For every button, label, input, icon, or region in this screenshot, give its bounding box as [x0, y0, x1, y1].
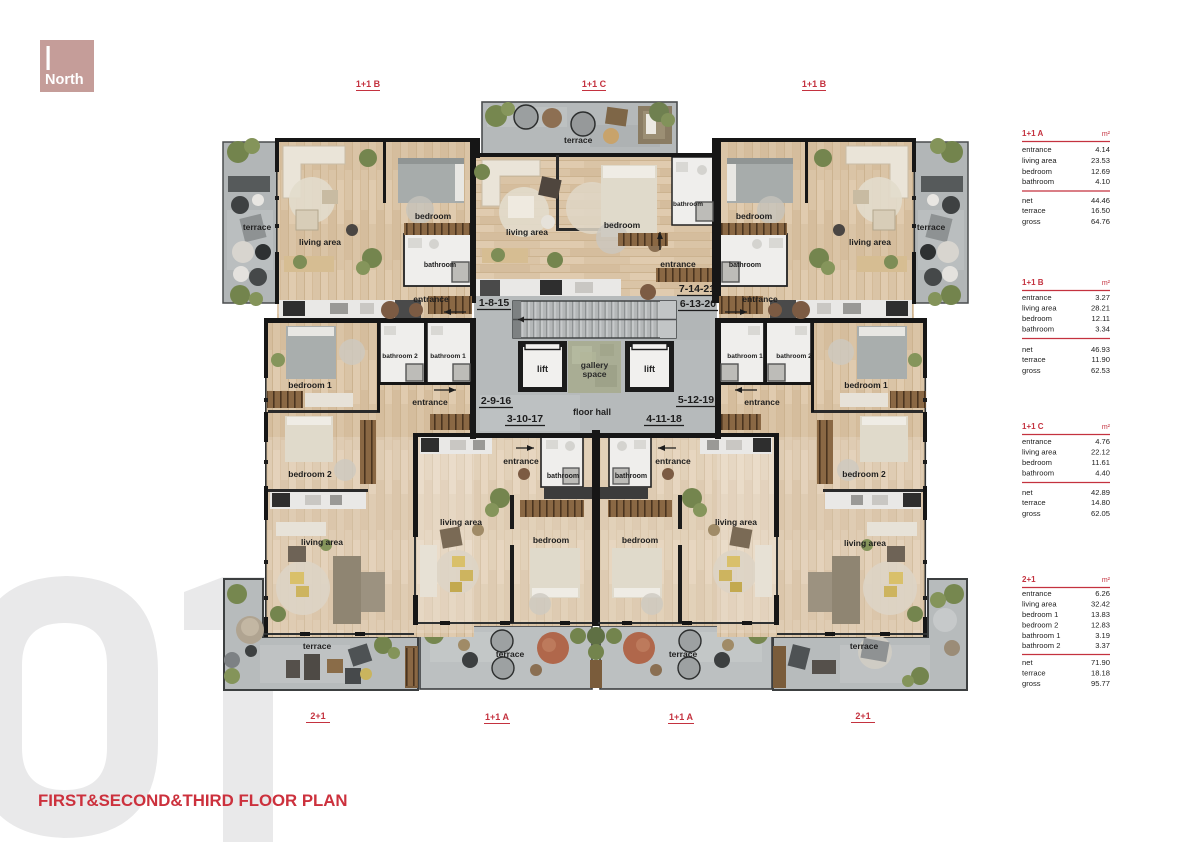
svg-text:net: net — [1022, 488, 1033, 497]
svg-text:bedroom: bedroom — [415, 211, 452, 221]
svg-text:bathroom 2: bathroom 2 — [776, 353, 812, 360]
svg-text:terrace: terrace — [243, 222, 272, 232]
svg-text:gross: gross — [1022, 217, 1041, 226]
svg-text:12.11: 12.11 — [1092, 314, 1110, 323]
svg-text:bedroom 2: bedroom 2 — [288, 469, 332, 479]
svg-text:bedroom 2: bedroom 2 — [842, 469, 886, 479]
svg-text:4-11-18: 4-11-18 — [646, 413, 682, 425]
svg-text:bathroom 2: bathroom 2 — [1022, 641, 1060, 650]
svg-text:floor hall: floor hall — [573, 407, 611, 417]
svg-text:terrace: terrace — [1022, 498, 1046, 507]
svg-text:95.77: 95.77 — [1091, 679, 1110, 688]
svg-text:terrace: terrace — [1022, 206, 1046, 215]
svg-text:bathroom: bathroom — [547, 473, 579, 480]
svg-text:62.53: 62.53 — [1091, 366, 1110, 375]
svg-text:bathroom 1: bathroom 1 — [1022, 631, 1060, 640]
svg-text:terrace: terrace — [1022, 669, 1046, 678]
svg-text:18.18: 18.18 — [1091, 669, 1110, 678]
svg-text:1+1 B: 1+1 B — [356, 79, 381, 89]
svg-text:terrace: terrace — [496, 649, 525, 659]
svg-text:entrance: entrance — [744, 397, 780, 407]
svg-text:FIRST&SECOND&THIRD FLOOR PLAN: FIRST&SECOND&THIRD FLOOR PLAN — [38, 791, 348, 810]
svg-text:terrace: terrace — [303, 641, 332, 651]
svg-text:16.50: 16.50 — [1091, 206, 1110, 215]
svg-text:bedroom: bedroom — [736, 211, 773, 221]
svg-text:2+1: 2+1 — [310, 711, 325, 721]
svg-text:living area: living area — [440, 517, 482, 527]
svg-text:terrace: terrace — [669, 649, 698, 659]
svg-text:living area: living area — [299, 237, 341, 247]
svg-text:5-12-19: 5-12-19 — [678, 394, 714, 406]
svg-text:bedroom: bedroom — [622, 535, 659, 545]
svg-text:bathroom: bathroom — [729, 262, 761, 269]
svg-text:m²: m² — [1102, 424, 1111, 431]
svg-text:terrace: terrace — [850, 641, 879, 651]
svg-text:bathroom: bathroom — [1022, 177, 1054, 186]
svg-text:entrance: entrance — [742, 294, 778, 304]
svg-text:62.05: 62.05 — [1091, 509, 1110, 518]
svg-text:bedroom 2: bedroom 2 — [1022, 621, 1058, 630]
svg-text:bedroom 1: bedroom 1 — [1022, 610, 1058, 619]
svg-text:28.21: 28.21 — [1091, 304, 1110, 313]
svg-text:gross: gross — [1022, 509, 1041, 518]
svg-text:2+1: 2+1 — [1022, 575, 1036, 584]
svg-text:46.93: 46.93 — [1091, 345, 1110, 354]
svg-text:entrance: entrance — [1022, 589, 1052, 598]
svg-text:6.26: 6.26 — [1095, 589, 1110, 598]
svg-text:terrace: terrace — [564, 135, 593, 145]
svg-text:North: North — [45, 72, 84, 88]
svg-text:space: space — [582, 369, 606, 379]
svg-text:entrance: entrance — [1022, 293, 1052, 302]
svg-text:net: net — [1022, 196, 1033, 205]
svg-text:1+1 C: 1+1 C — [582, 79, 607, 89]
svg-text:bathroom 1: bathroom 1 — [727, 353, 763, 360]
svg-text:1+1 A: 1+1 A — [1022, 129, 1043, 138]
svg-text:3.27: 3.27 — [1095, 293, 1110, 302]
svg-text:12.83: 12.83 — [1091, 621, 1110, 630]
svg-text:1+1 A: 1+1 A — [485, 712, 509, 722]
svg-text:m²: m² — [1102, 577, 1111, 584]
svg-text:bathroom: bathroom — [1022, 325, 1054, 334]
svg-text:3.37: 3.37 — [1095, 641, 1110, 650]
svg-text:bedroom: bedroom — [1022, 314, 1052, 323]
svg-text:lift: lift — [644, 364, 655, 374]
svg-text:64.76: 64.76 — [1091, 217, 1110, 226]
svg-text:2-9-16: 2-9-16 — [481, 395, 512, 407]
svg-text:gross: gross — [1022, 679, 1041, 688]
svg-text:entrance: entrance — [1022, 145, 1052, 154]
svg-text:living area: living area — [844, 538, 886, 548]
svg-text:11.61: 11.61 — [1092, 458, 1110, 467]
svg-text:bedroom 1: bedroom 1 — [844, 380, 888, 390]
svg-text:entrance: entrance — [503, 456, 539, 466]
svg-text:lift: lift — [537, 364, 548, 374]
svg-text:1+1 A: 1+1 A — [669, 712, 693, 722]
svg-text:4.40: 4.40 — [1095, 469, 1110, 478]
svg-text:bedroom: bedroom — [533, 535, 570, 545]
svg-text:1+1 B: 1+1 B — [1022, 278, 1044, 287]
svg-text:11.90: 11.90 — [1092, 355, 1110, 364]
svg-text:gross: gross — [1022, 366, 1041, 375]
svg-text:12.69: 12.69 — [1091, 167, 1110, 176]
svg-text:1-8-15: 1-8-15 — [479, 297, 510, 309]
svg-text:3.34: 3.34 — [1095, 325, 1110, 334]
svg-text:4.76: 4.76 — [1095, 437, 1110, 446]
svg-text:living area: living area — [849, 237, 891, 247]
svg-text:terrace: terrace — [917, 222, 946, 232]
svg-text:7-14-21: 7-14-21 — [679, 283, 715, 295]
svg-text:6-13-20: 6-13-20 — [680, 298, 716, 310]
svg-text:living area: living area — [506, 227, 548, 237]
svg-text:1+1 B: 1+1 B — [802, 79, 827, 89]
svg-text:living area: living area — [301, 537, 343, 547]
svg-text:bedroom: bedroom — [1022, 458, 1052, 467]
svg-text:22.12: 22.12 — [1091, 448, 1110, 457]
svg-text:entrance: entrance — [660, 259, 696, 269]
svg-text:m²: m² — [1102, 280, 1111, 287]
svg-text:living area: living area — [1022, 156, 1057, 165]
svg-text:3.19: 3.19 — [1095, 631, 1110, 640]
svg-text:4.14: 4.14 — [1095, 145, 1110, 154]
svg-text:42.89: 42.89 — [1091, 488, 1110, 497]
svg-text:bathroom 1: bathroom 1 — [430, 353, 466, 360]
svg-text:bathroom: bathroom — [1022, 469, 1054, 478]
svg-text:32.42: 32.42 — [1091, 600, 1110, 609]
svg-text:13.83: 13.83 — [1091, 610, 1110, 619]
svg-text:2+1: 2+1 — [855, 711, 870, 721]
svg-text:entrance: entrance — [413, 294, 449, 304]
svg-text:bedroom: bedroom — [604, 220, 641, 230]
svg-text:bedroom: bedroom — [1022, 167, 1052, 176]
svg-text:71.90: 71.90 — [1091, 658, 1110, 667]
svg-text:net: net — [1022, 658, 1033, 667]
svg-text:bedroom 1: bedroom 1 — [288, 380, 332, 390]
svg-text:44.46: 44.46 — [1091, 196, 1110, 205]
svg-text:4.10: 4.10 — [1095, 177, 1110, 186]
svg-text:terrace: terrace — [1022, 355, 1046, 364]
svg-text:entrance: entrance — [412, 397, 448, 407]
svg-text:bathroom 2: bathroom 2 — [382, 353, 418, 360]
svg-text:14.80: 14.80 — [1091, 498, 1110, 507]
svg-text:bathroom: bathroom — [424, 262, 456, 269]
svg-text:23.53: 23.53 — [1091, 156, 1110, 165]
svg-text:living area: living area — [1022, 304, 1057, 313]
svg-text:entrance: entrance — [655, 456, 691, 466]
svg-text:net: net — [1022, 345, 1033, 354]
svg-text:3-10-17: 3-10-17 — [507, 413, 543, 425]
svg-text:living area: living area — [1022, 600, 1057, 609]
svg-text:bathroom: bathroom — [615, 473, 647, 480]
svg-text:1+1 C: 1+1 C — [1022, 422, 1044, 431]
svg-text:living area: living area — [1022, 448, 1057, 457]
svg-text:bathroom: bathroom — [673, 201, 703, 208]
svg-text:entrance: entrance — [1022, 437, 1052, 446]
svg-text:living area: living area — [715, 517, 757, 527]
svg-text:m²: m² — [1102, 131, 1111, 138]
